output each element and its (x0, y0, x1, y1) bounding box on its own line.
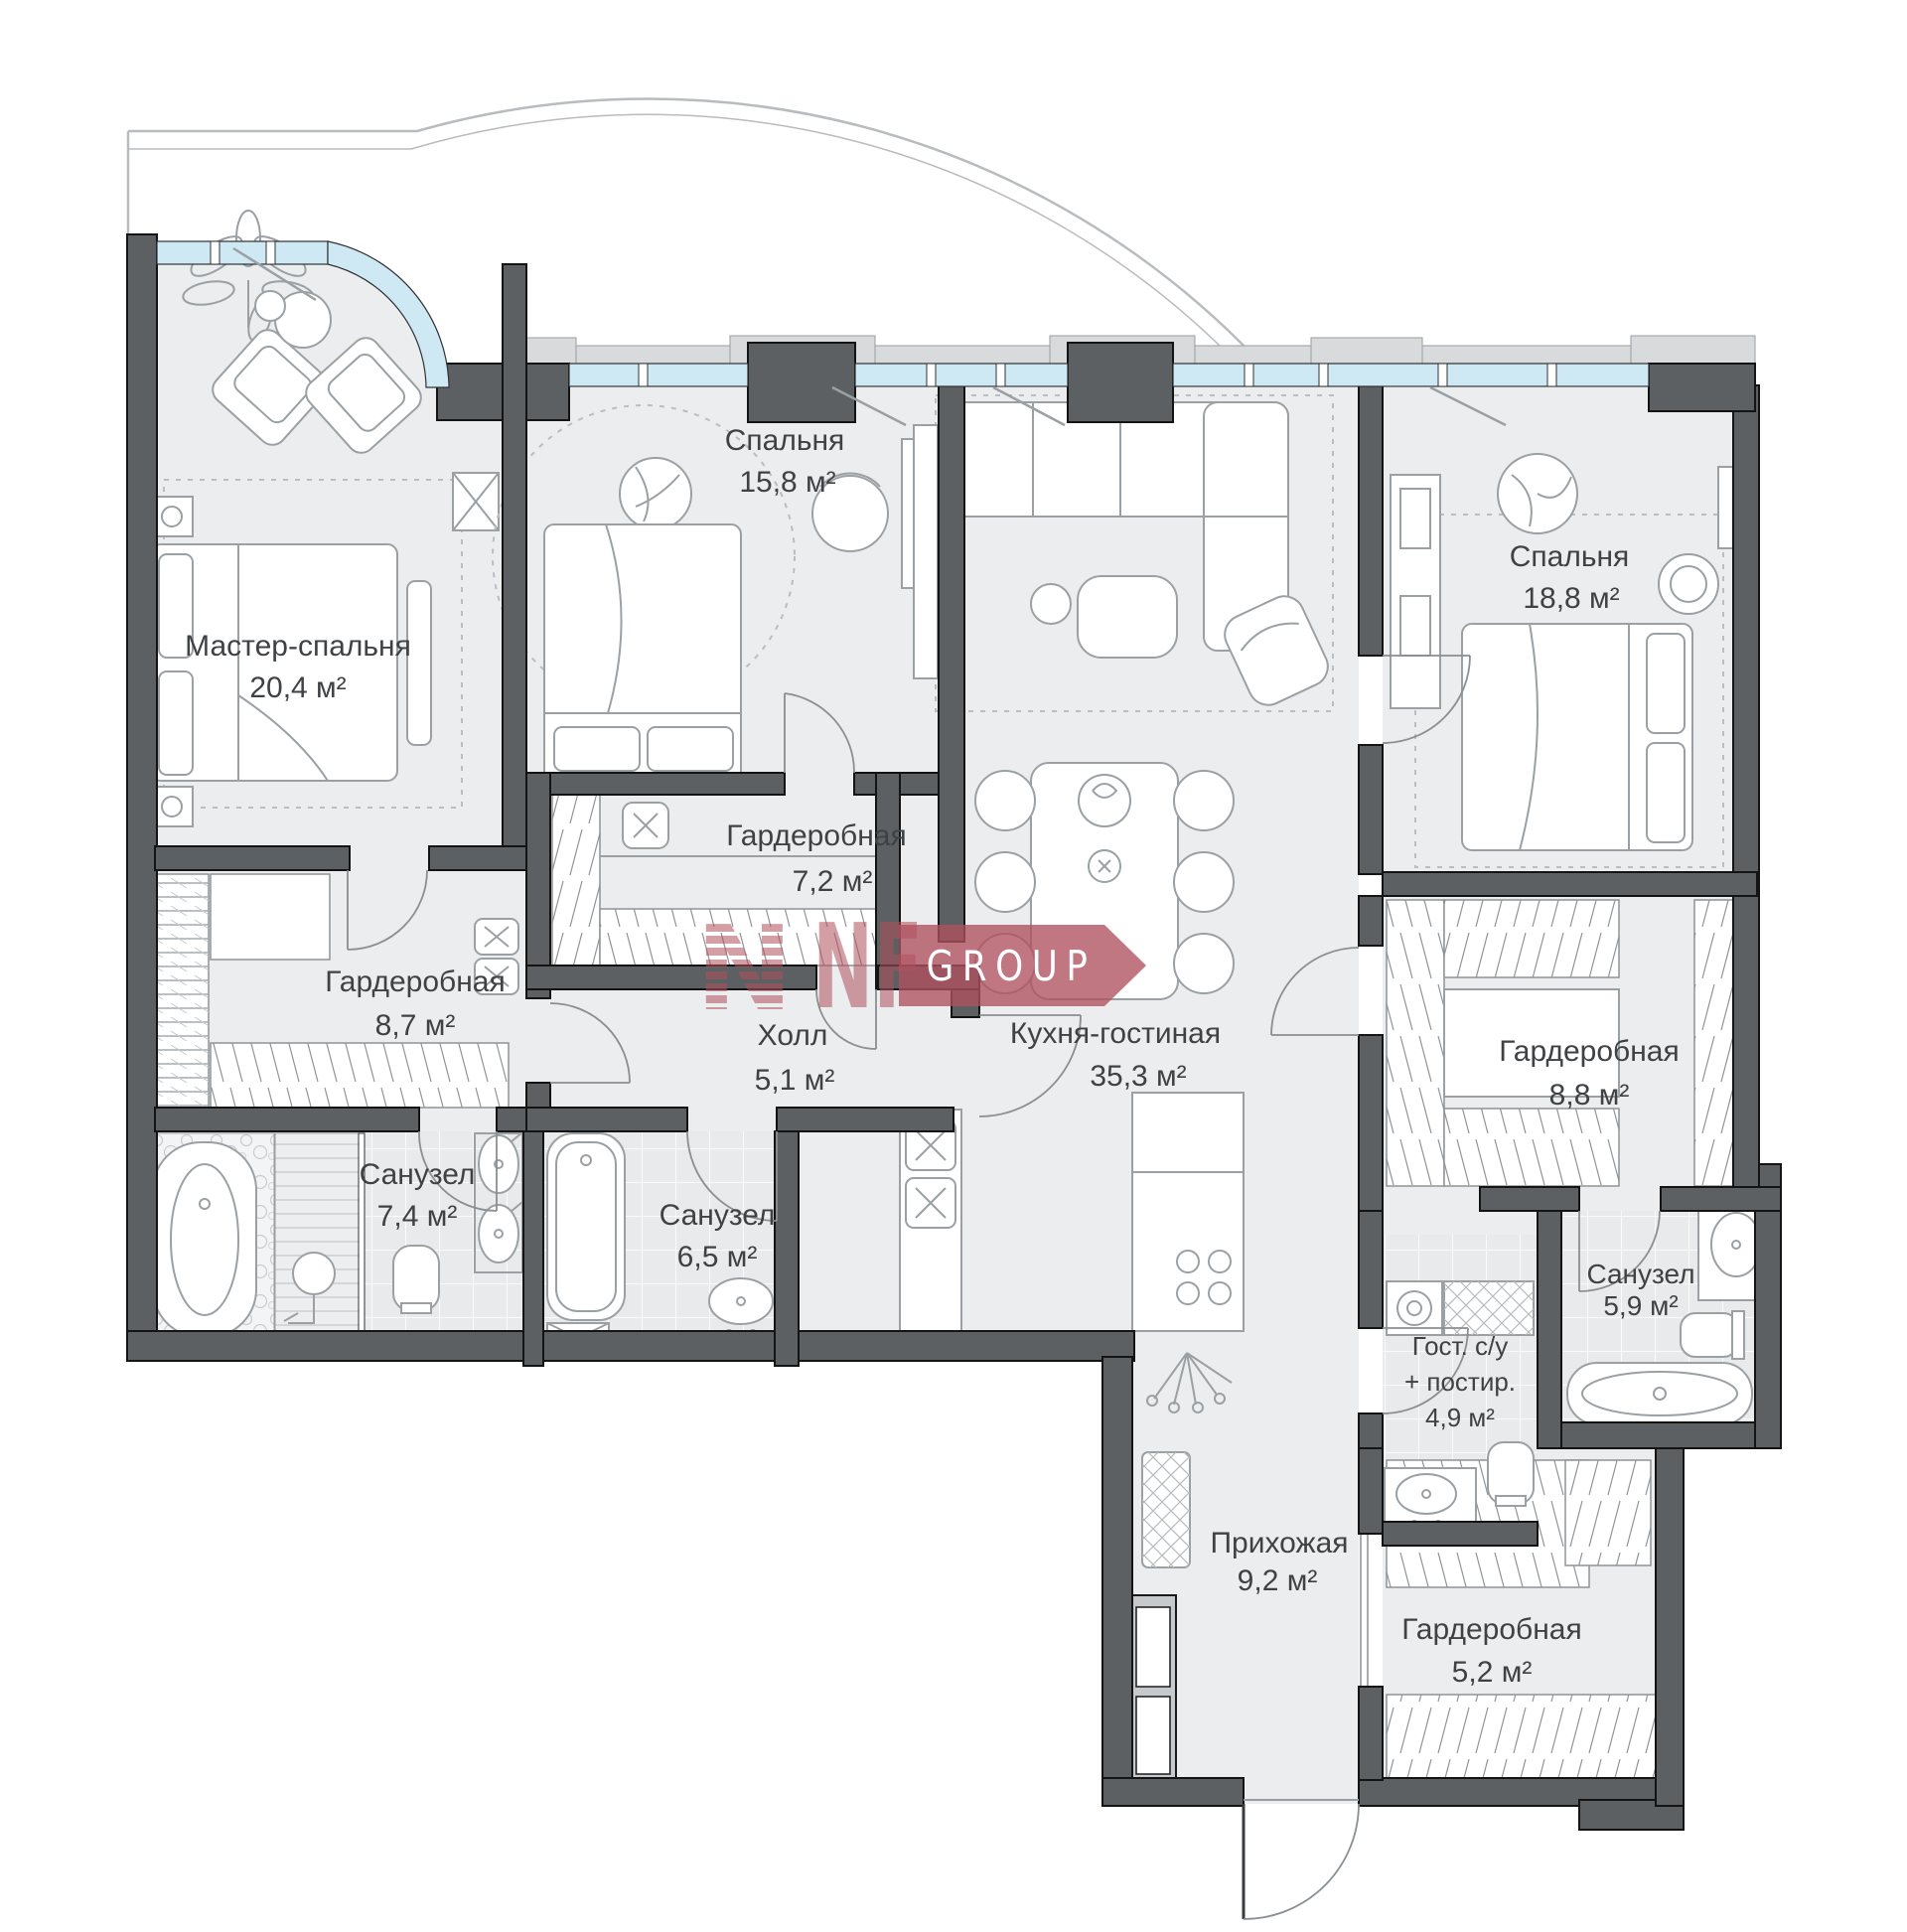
beanbag-icon (1498, 454, 1577, 533)
washer-icon (1387, 1281, 1442, 1335)
bathtub-icon (1567, 1363, 1752, 1424)
floor-plan-canvas: N (0, 0, 1907, 1932)
room-label-name: Гардеробная (325, 966, 505, 998)
console-icon (1391, 475, 1440, 708)
room-label-area: 7,2 м² (793, 865, 873, 898)
pocket-door (1361, 1534, 1368, 1687)
bench-icon (407, 581, 431, 745)
bathtub-icon (153, 1142, 256, 1337)
pouf-icon (1659, 554, 1718, 614)
room-label-name: Спальня (1510, 540, 1630, 573)
room-label-area: 5,1 м² (755, 1064, 835, 1097)
room-label-area: 20,4 м² (249, 671, 346, 704)
room-label-area: 35,3 м² (1090, 1060, 1186, 1093)
toilet-icon (1488, 1442, 1534, 1506)
room-label-name: Санузел (360, 1158, 476, 1191)
bed-icon (151, 544, 397, 781)
toilet-icon (1681, 1311, 1744, 1359)
room-label-area: 8,8 м² (1549, 1079, 1630, 1112)
room-label-area: 5,2 м² (1452, 1656, 1533, 1689)
bed-icon (544, 524, 741, 785)
sink-icon (1385, 1468, 1476, 1530)
room-label-name: Гардеробная (726, 819, 906, 852)
floor-plan-page: N (0, 0, 1907, 1932)
room-label-name: Кухня-гостиная (1010, 1017, 1221, 1050)
laundry-shelf-icon (1444, 1281, 1534, 1335)
room-label-area: 15,8 м² (739, 466, 835, 499)
kitchen-counter-icon (900, 1110, 961, 1331)
toilet-icon (393, 1246, 439, 1313)
room-label-name: Гардеробная (1499, 1035, 1679, 1068)
side-table-icon (1031, 584, 1071, 624)
room-label-name: Гардеробная (1401, 1613, 1581, 1646)
room-label-area: 6,5 м² (677, 1241, 758, 1273)
room-label-area: 9,2 м² (1238, 1564, 1318, 1597)
room-label-name: Гост. с/у (1412, 1331, 1509, 1361)
shaft-column (1130, 1595, 1176, 1784)
doormat-icon (1142, 1452, 1190, 1567)
room-label-area: 5,9 м² (1603, 1290, 1678, 1321)
room-label-area: 8,7 м² (375, 1009, 456, 1042)
side-table-icon (255, 291, 285, 321)
room-label-name: Спальня (725, 424, 845, 457)
entrance-door (1244, 1800, 1359, 1919)
coffee-table-icon (1078, 576, 1177, 658)
dresser-icon (453, 473, 499, 530)
room-label-name-line2: + постир. (1404, 1367, 1516, 1397)
room-label-area: 7,4 м² (377, 1200, 458, 1233)
kitchen-counter-icon (1132, 1093, 1244, 1331)
room-label-area: 4,9 м² (1425, 1403, 1495, 1432)
cabinet-icon (623, 803, 668, 848)
bed-icon (1462, 624, 1692, 850)
room-label-name: Прихожая (1210, 1527, 1348, 1560)
room-label-name: Санузел (1586, 1259, 1694, 1289)
watermark-group-text: GROUP (927, 943, 1097, 990)
room-label-area: 18,8 м² (1523, 582, 1619, 615)
room-label-name: Мастер-спальня (185, 630, 411, 663)
room-label-name: Санузел (660, 1199, 776, 1232)
pouf-icon (620, 458, 691, 529)
